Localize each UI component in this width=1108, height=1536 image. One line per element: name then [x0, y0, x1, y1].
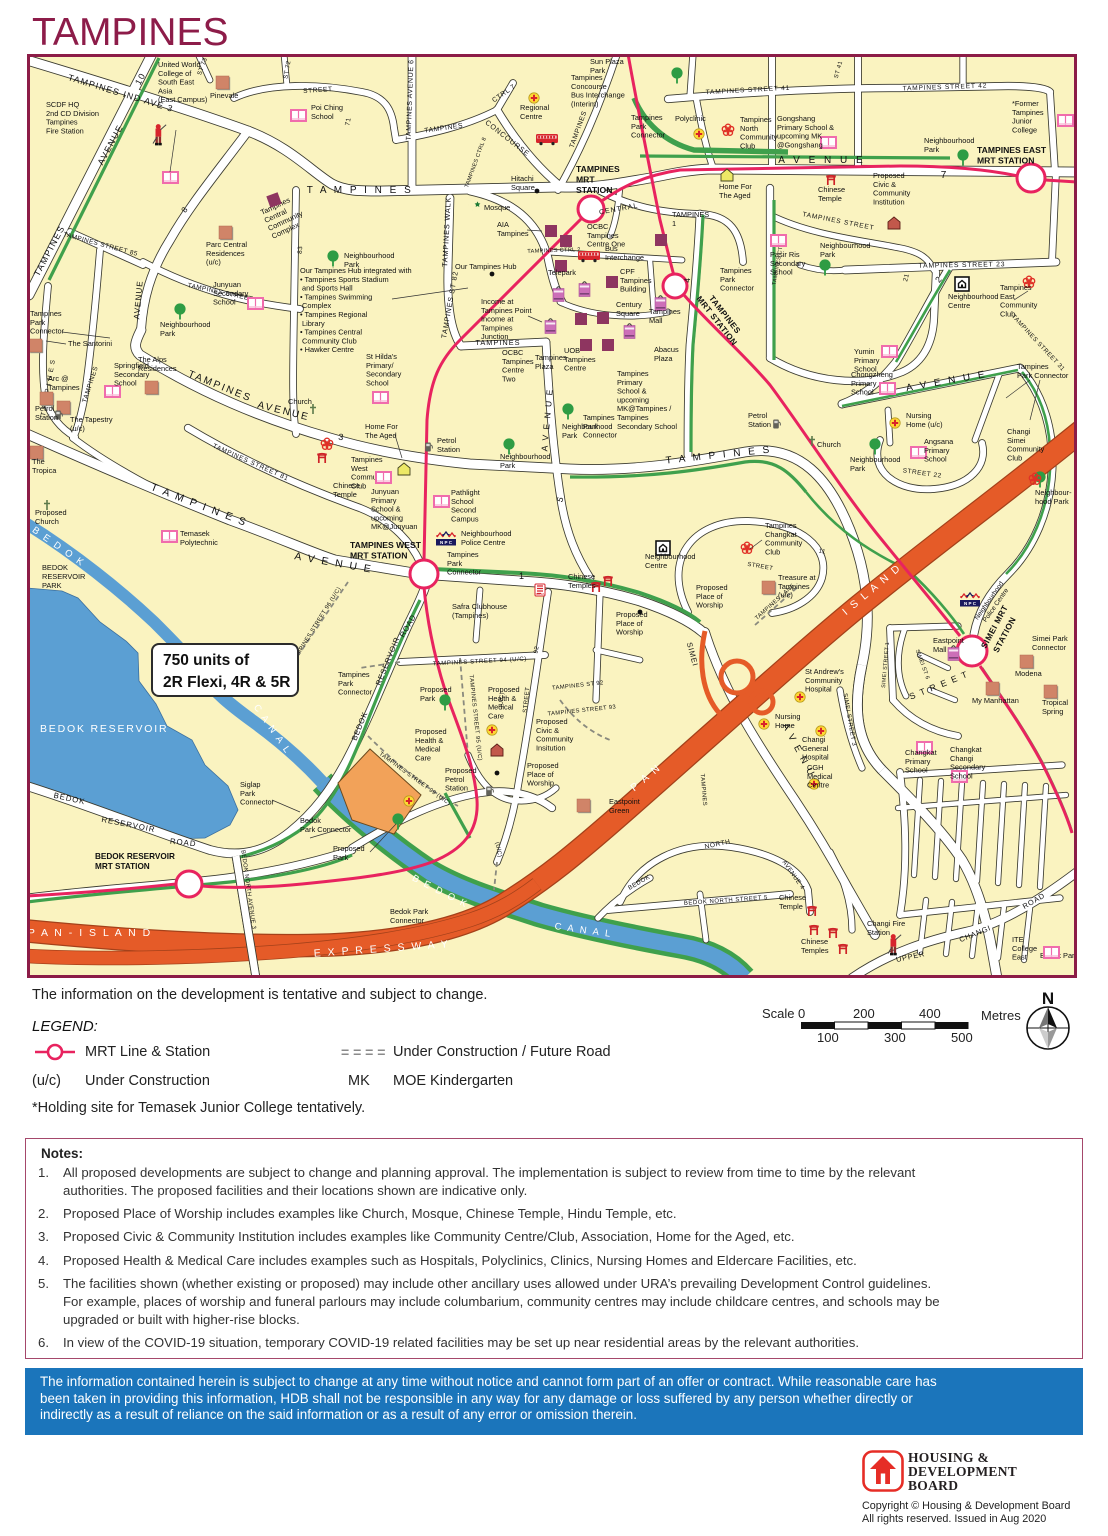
svg-text:300: 300 [884, 1030, 906, 1045]
svg-text:100: 100 [817, 1030, 839, 1045]
svg-text:500: 500 [951, 1030, 973, 1045]
svg-text:200: 200 [853, 1006, 875, 1021]
svg-text:400: 400 [919, 1006, 941, 1021]
svg-text:N: N [1042, 989, 1054, 1008]
svg-text:0: 0 [798, 1006, 805, 1021]
svg-text:Scale: Scale [762, 1006, 795, 1021]
